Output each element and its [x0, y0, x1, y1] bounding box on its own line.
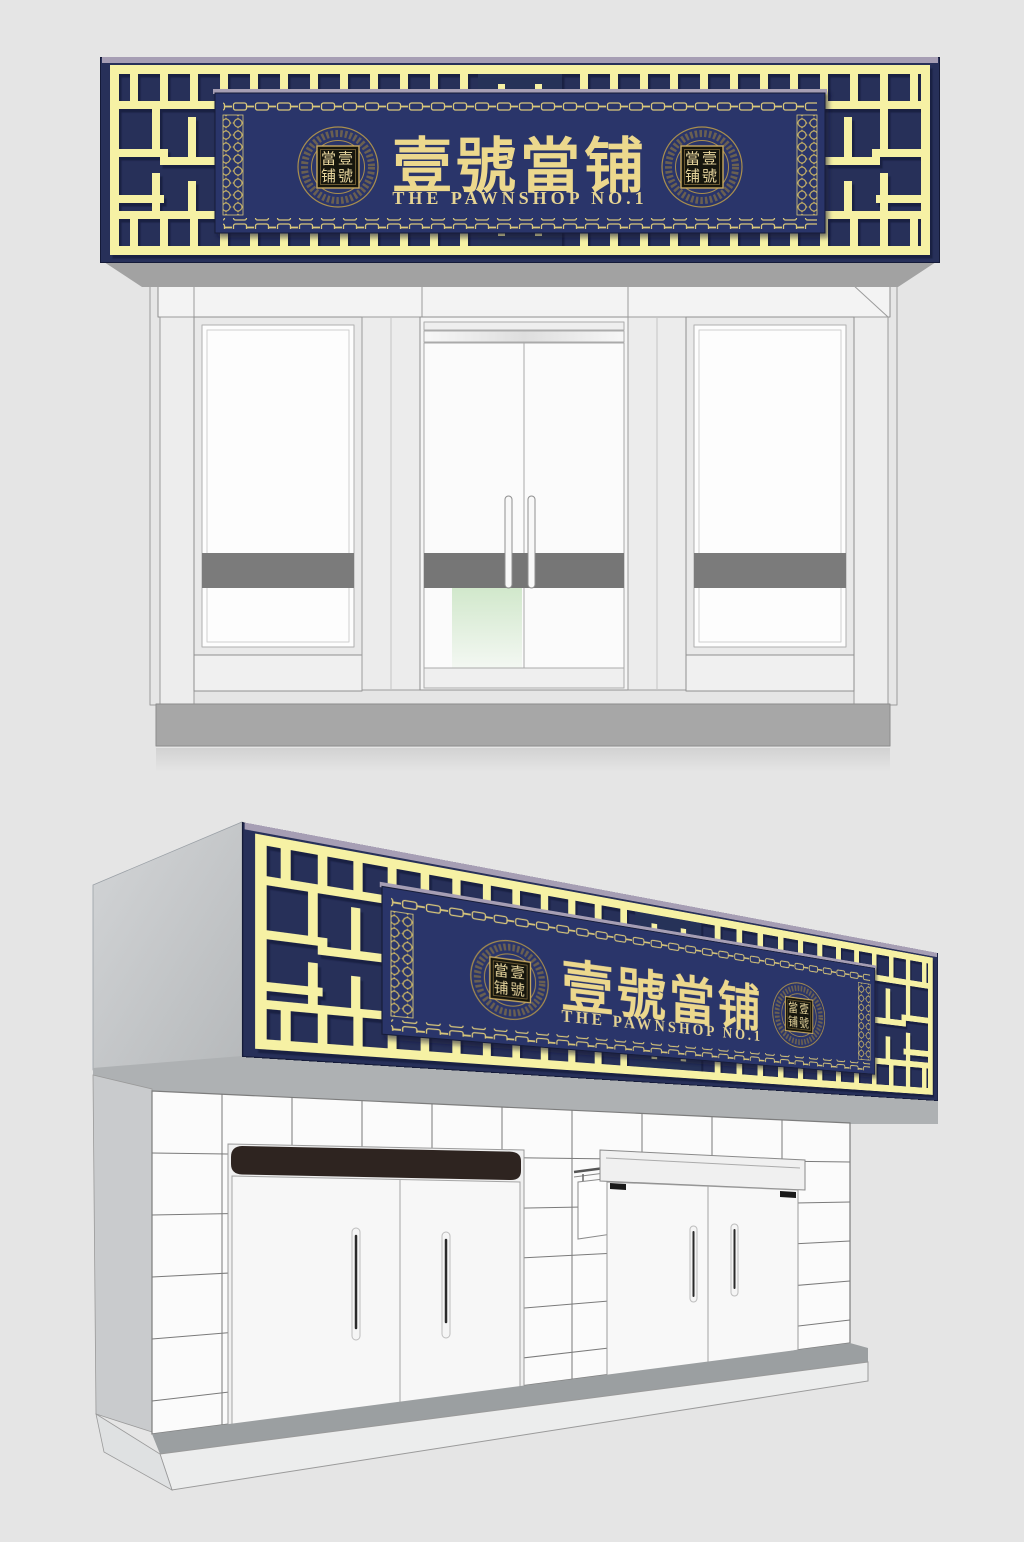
entrance-doors-front [420, 317, 628, 690]
entrance-left-perspective [228, 1144, 524, 1432]
display-window-right [686, 317, 854, 691]
spandrel-band [694, 553, 846, 588]
side-wall [93, 1075, 152, 1432]
header-band [158, 284, 890, 317]
display-window-left [194, 317, 362, 691]
doors [232, 1176, 520, 1426]
pawnshop-sign-front-view [100, 57, 940, 263]
window-sill [686, 655, 854, 691]
window-sill [194, 655, 362, 691]
wall-edge-left [150, 286, 160, 705]
window-glass [694, 325, 846, 647]
door-bottom-rail [424, 668, 624, 688]
sign-underside [104, 262, 936, 287]
column-left [160, 317, 194, 705]
storefront-sign-mockup: 當壹 铺號 [0, 0, 1024, 1542]
transom-rail [424, 322, 624, 330]
wall-edge-right [888, 286, 897, 705]
window-glass [202, 325, 354, 647]
door-handle [528, 496, 535, 588]
column-right [854, 317, 888, 705]
base-plinth [156, 704, 890, 746]
floor-reflection [156, 748, 890, 772]
spandrel-band [424, 553, 624, 588]
door-patch-fitting [780, 1191, 796, 1198]
spandrel-band [202, 553, 354, 588]
door-handle [505, 496, 512, 588]
entrance-header-band [231, 1146, 521, 1180]
door-leaf-right [524, 343, 624, 688]
door-patch-fitting [610, 1183, 626, 1190]
